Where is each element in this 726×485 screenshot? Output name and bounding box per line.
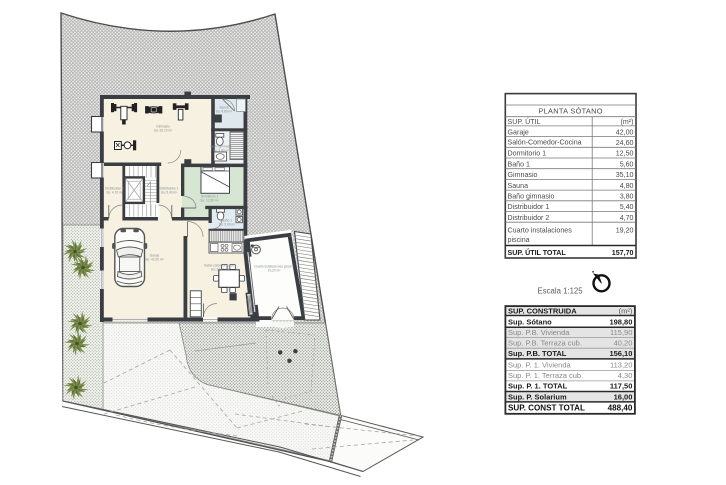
svg-text:(m²): (m²) [619,307,633,316]
svg-text:12,50: 12,50 [616,150,634,158]
svg-text:Su: 4,80 m²: Su: 4,80 m² [216,110,232,114]
svg-text:(m²): (m²) [621,118,634,126]
svg-text:35,10: 35,10 [616,171,634,179]
svg-text:Su: 24,60 m²: Su: 24,60 m² [211,268,229,272]
svg-text:Salón-Comedor-Cocina: Salón-Comedor-Cocina [508,139,582,147]
svg-text:SUP. CONST TOTAL: SUP. CONST TOTAL [508,404,585,413]
svg-text:Su: 42,00 m²: Su: 42,00 m² [145,258,163,262]
svg-text:4,80: 4,80 [620,182,634,190]
svg-text:Sup. P.B. TOTAL: Sup. P.B. TOTAL [508,349,567,358]
svg-text:Gimnasio: Gimnasio [508,171,538,179]
svg-text:157,70: 157,70 [612,249,634,257]
svg-text:198,80: 198,80 [609,317,632,326]
svg-text:Sup. P.B. Terraza cub.: Sup. P.B. Terraza cub. [508,339,582,348]
svg-text:19,20: 19,20 [616,227,634,235]
svg-text:Garaje: Garaje [508,128,529,136]
svg-text:Su: 35,10 m²: Su: 35,10 m² [154,129,172,133]
svg-text:Su: 4,70 m²: Su: 4,70 m² [106,191,122,195]
svg-text:5,40: 5,40 [620,203,634,211]
svg-text:113,20: 113,20 [610,361,632,370]
svg-text:Su: 12,50 m²: Su: 12,50 m² [200,199,218,203]
svg-text:Sauna: Sauna [508,182,529,190]
svg-text:40,20: 40,20 [614,339,633,348]
svg-text:4,70: 4,70 [620,214,634,222]
svg-text:19,20 m²: 19,20 m² [268,269,281,273]
svg-text:Dormitorio 1: Dormitorio 1 [508,150,547,158]
svg-text:4,30: 4,30 [618,371,633,380]
svg-text:Sup. P. Solarium: Sup. P. Solarium [508,392,567,401]
svg-text:156,10: 156,10 [609,349,632,358]
svg-text:Distribuidor 2: Distribuidor 2 [508,214,550,222]
svg-text:piscina: piscina [508,236,530,244]
svg-text:42,00: 42,00 [616,128,634,136]
svg-text:Baño 1: Baño 1 [508,160,531,168]
svg-text:488,40: 488,40 [608,404,633,413]
svg-text:Su: 5,60 m²: Su: 5,60 m² [219,223,235,227]
svg-text:PLANTA SÓTANO: PLANTA SÓTANO [538,106,602,115]
svg-text:Su: 5,40 m²: Su: 5,40 m² [161,191,177,195]
svg-text:Sup. Sótano: Sup. Sótano [508,317,552,326]
svg-text:SUP. ÚTIL TOTAL: SUP. ÚTIL TOTAL [508,248,567,257]
svg-text:3,80: 3,80 [620,193,634,201]
svg-text:Sup. P.B. Vivienda: Sup. P.B. Vivienda [508,328,570,337]
svg-text:Escala 1:125: Escala 1:125 [538,287,584,296]
svg-text:117,50: 117,50 [610,382,633,391]
svg-text:24,60: 24,60 [616,139,634,147]
svg-text:5,60: 5,60 [620,160,634,168]
svg-text:Sup. P. 1. TOTAL: Sup. P. 1. TOTAL [508,382,568,391]
svg-text:16,00: 16,00 [614,392,633,401]
svg-text:SUP. ÚTIL: SUP. ÚTIL [508,117,541,126]
svg-text:SUP. CONSTRUIDA: SUP. CONSTRUIDA [508,306,577,315]
svg-text:Sup. P. 1. Vivienda: Sup. P. 1. Vivienda [508,361,572,370]
svg-text:Su: 3,80 m²: Su: 3,80 m² [213,149,229,153]
svg-text:115,90: 115,90 [610,328,632,337]
svg-text:Cuarto instalaciones: Cuarto instalaciones [508,227,573,235]
svg-text:Baño gimnasio: Baño gimnasio [508,193,555,201]
svg-text:Sup. P. 1. Terraza cub.: Sup. P. 1. Terraza cub. [508,371,583,380]
svg-text:Distribuidor 1: Distribuidor 1 [508,203,550,211]
